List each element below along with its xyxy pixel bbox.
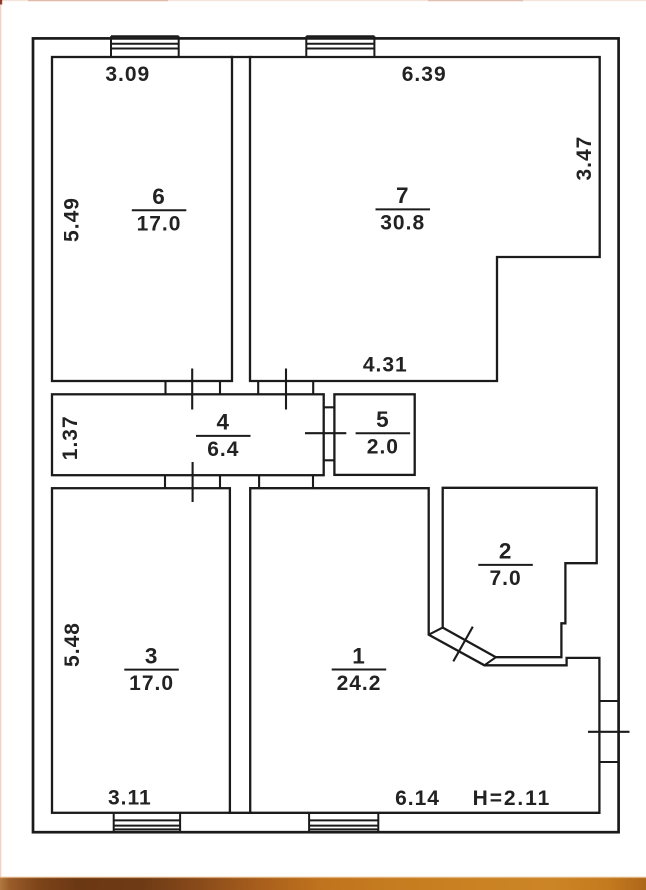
svg-text:6.14: 6.14 [395, 787, 440, 810]
svg-text:6.39: 6.39 [402, 63, 447, 86]
svg-text:5: 5 [376, 407, 390, 432]
svg-text:2.0: 2.0 [367, 436, 399, 459]
svg-text:4.31: 4.31 [363, 354, 408, 377]
svg-text:H=2.11: H=2.11 [473, 787, 552, 810]
svg-text:6: 6 [152, 184, 166, 209]
svg-text:1: 1 [352, 643, 366, 668]
svg-text:7.0: 7.0 [489, 567, 521, 590]
svg-text:2: 2 [499, 539, 513, 564]
svg-text:4: 4 [217, 410, 231, 435]
svg-text:6.4: 6.4 [207, 438, 239, 461]
svg-text:17.0: 17.0 [129, 672, 174, 695]
svg-text:24.2: 24.2 [337, 672, 382, 695]
svg-text:17.0: 17.0 [137, 213, 182, 236]
svg-text:7: 7 [396, 183, 410, 208]
svg-text:3.47: 3.47 [573, 136, 596, 181]
svg-text:3.11: 3.11 [108, 787, 152, 810]
svg-text:3.09: 3.09 [105, 63, 150, 86]
svg-text:5.49: 5.49 [61, 197, 84, 242]
svg-text:1.37: 1.37 [59, 415, 82, 460]
svg-text:30.8: 30.8 [380, 212, 425, 235]
svg-text:5.48: 5.48 [61, 622, 84, 667]
svg-text:3: 3 [145, 643, 159, 668]
